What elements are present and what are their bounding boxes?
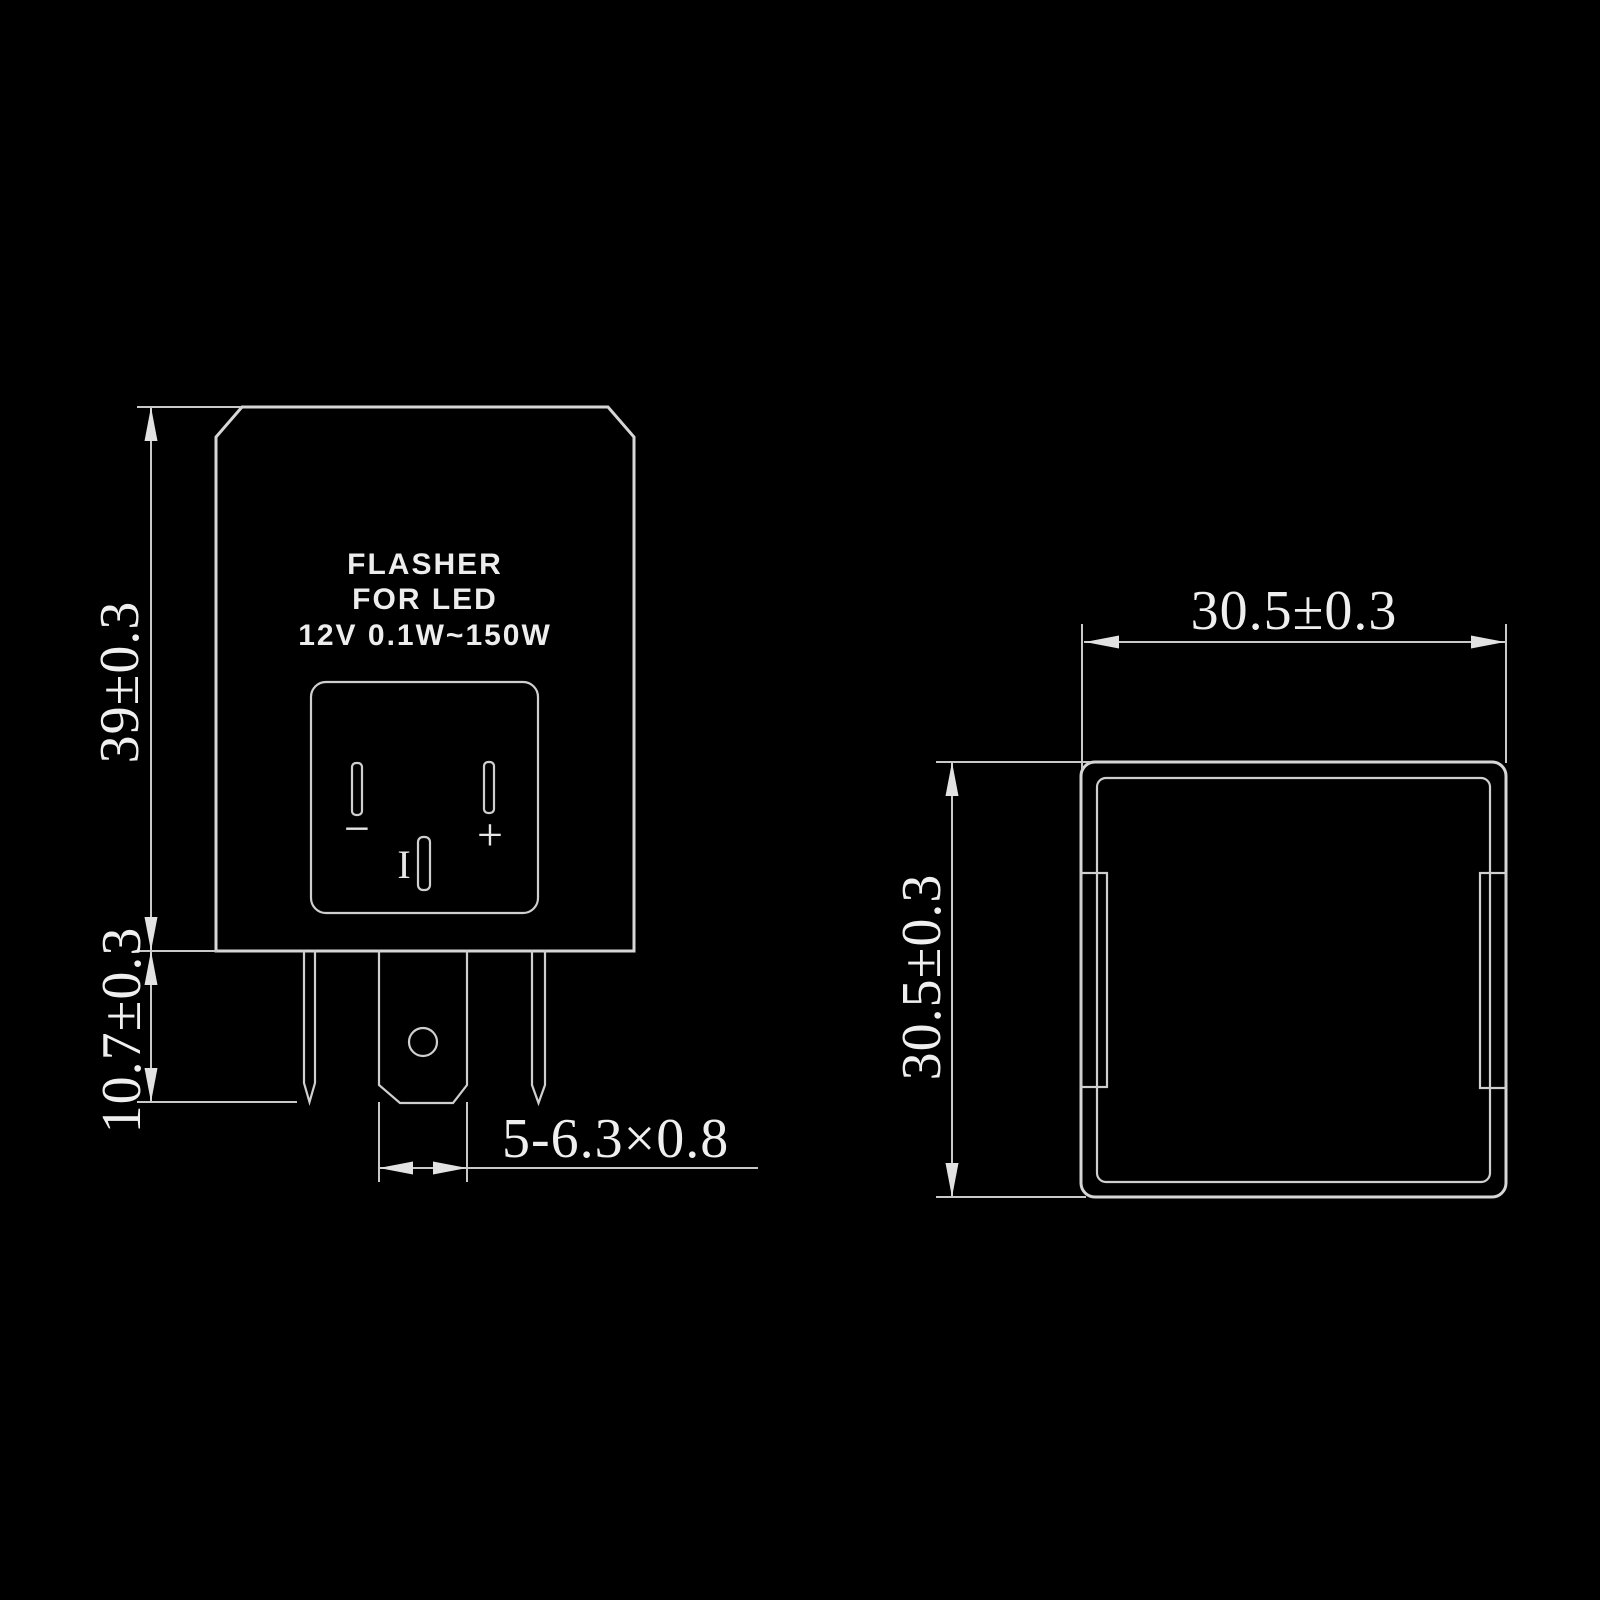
drawing-canvas: FLASHER FOR LED 12V 0.1W~150W − + I 39±0…: [0, 0, 1600, 1600]
side-view: 30.5±0.3 30.5±0.3: [891, 580, 1506, 1197]
terminal-slot-positive: [484, 762, 494, 813]
terminal-symbol-negative: −: [344, 803, 370, 854]
connector-socket-outline: [311, 682, 538, 913]
dimension-label-height: 30.5±0.3: [891, 874, 953, 1081]
blade-terminal-hole: [409, 1028, 437, 1056]
arrowhead-blade-left: [379, 1162, 413, 1175]
arrowhead-body-top: [145, 407, 158, 441]
product-label-line-3: 12V 0.1W~150W: [298, 619, 552, 652]
side-inner-outline: [1097, 778, 1490, 1182]
dimension-label-blade-spec: 5-6.3×0.8: [502, 1108, 729, 1170]
arrowhead-blade-right: [433, 1162, 467, 1175]
terminal-symbol-load: I: [397, 842, 410, 887]
arrowhead-width-right: [1471, 636, 1505, 649]
side-latch-tab-left: [1081, 873, 1107, 1087]
terminal-slot-load: [418, 837, 430, 890]
relay-body-outline: [216, 407, 634, 951]
side-latch-tab-right: [1480, 873, 1506, 1088]
dimension-label-width: 30.5±0.3: [1191, 580, 1398, 642]
arrowhead-height-top: [946, 762, 959, 796]
flasher-relay-dimension-drawing: FLASHER FOR LED 12V 0.1W~150W − + I 39±0…: [0, 0, 1600, 1600]
arrowhead-width-left: [1085, 636, 1119, 649]
dimension-label-body-height: 39±0.3: [89, 601, 151, 764]
terminal-symbol-positive: +: [477, 809, 503, 860]
dimension-label-pin-length: 10.7±0.3: [91, 927, 153, 1134]
side-outer-outline: [1081, 762, 1506, 1197]
front-view: FLASHER FOR LED 12V 0.1W~150W − + I 39±0…: [89, 407, 757, 1181]
product-label-line-2: FOR LED: [352, 583, 498, 616]
left-pin-outline: [304, 951, 315, 1102]
right-pin-outline: [532, 951, 545, 1103]
product-label-line-1: FLASHER: [347, 548, 503, 581]
arrowhead-height-bottom: [946, 1163, 959, 1197]
